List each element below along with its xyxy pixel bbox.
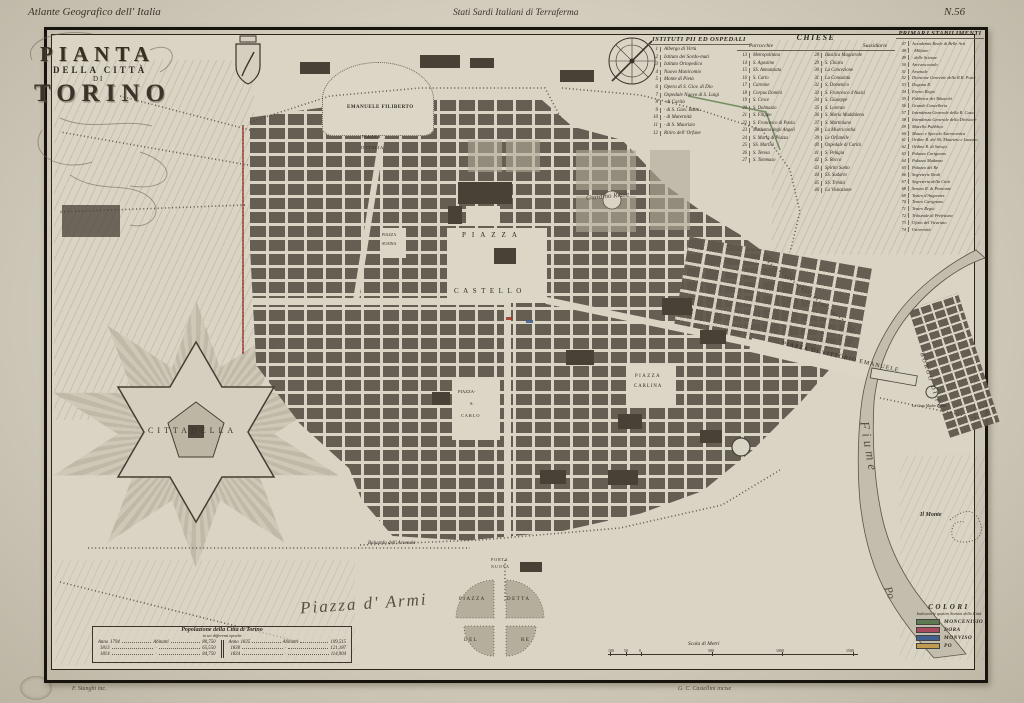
legend-stabilimenti-title: PRIMARJ STABILIMENTI [896,30,984,39]
label-piazza-susina-1: PIAZZA [382,232,396,237]
legend-item: 37 S. Martiniano [809,121,895,129]
label-carlina-2: CARLINA [634,384,662,389]
map-sheet: { "margins": { "series_title": "Atlante … [0,0,1024,703]
legend-item: 18 Corpus Domini [737,91,809,99]
legend-item: 11 · di S. Maurizio [648,123,750,131]
label-del-re-1: PIAZZA [459,597,486,602]
legend-item: 19 S. Croce [737,98,809,106]
label-piazza-italia-1: PIAZZA [362,134,381,139]
legend-item: 5 Monte di Pietà [648,77,750,85]
legend-item: 68 Senato R. di Piemonte [896,186,984,193]
legend-item: 21 S. Filippo [737,113,809,121]
label-del-re-4: RE [521,638,530,643]
legend-item: 45 SS. Trinità [809,181,895,189]
legend-item: 35 S. Lorenzo [809,106,895,114]
legend-item: 29 S. Chiara [809,61,895,69]
legend-chiese-subheads: Parrocchie Sussidiarie [737,43,895,51]
label-s-carlo-1: PIAZZA- [458,389,476,394]
scale-tick: 500 [708,648,714,653]
legend-item: 67 Segreteria della Città [896,179,984,186]
scale-label: Scala di Metri [688,641,719,647]
legend-sussidiarie-list: 28 Basilica Magistrale 29 S. Chiara 30 L… [809,53,895,196]
label-s-carlo-3: CARLO [461,413,480,418]
label-baluardo-arsenale: Baluardo dell' Arsenale [368,541,415,546]
colour-swatch [916,635,940,642]
population-row: 1814 · 84,750 [98,652,216,658]
legend-chiese-title: CHIESE [737,33,895,43]
label-gran-madre: La Gran Madre di Dio [912,404,946,408]
legend-item: 74 Università [896,227,984,234]
legend-item: 53 Dogana R. [896,82,984,89]
monte-spiral [950,511,981,542]
label-del-re-3: DEL [464,638,478,643]
legend-item: 25 SS. Martiri [737,143,809,151]
legend-item: 70 Teatro Carignano [896,199,984,206]
round-church [732,438,750,456]
legend-item: 24 S. Maria di Piazza [737,136,809,144]
colori-row: PO [912,642,986,650]
label-piazza-italia-2: D'ITALIA [361,145,384,150]
legend-item: 49 · delle Scienze [896,55,984,62]
legend-item: 34 S. Giuseppe [809,98,895,106]
legend-item: 16 S. Carlo [737,76,809,84]
legend-item: 63 Palazzo Carignano [896,151,984,158]
legend-item: 9 · di S. Giov. Batta. [648,108,750,116]
legend-item: 44 SS. Sudario [809,173,895,181]
legend-item: 61 Ordine R. dei SS. Maurizio e Lazzaro [896,137,984,144]
legend-stabilimenti: PRIMARJ STABILIMENTI 47 Accademia Reale … [896,30,984,234]
colori-entries: MONCENISIO DORA MONVISO PO [912,618,986,650]
legend-item: 62 Ordine R. di Savoja [896,144,984,151]
legend-item: 55 Fabbrica dei Tabacchi [896,96,984,103]
legend-item: 31 La Consolata [809,76,895,84]
colori-row: MONCENISIO [912,618,986,626]
legend-item: 42 S. Rocco [809,158,895,166]
cartouche-line4: TORINO [34,80,171,108]
legend-item: 23 Madonna degli Angeli [737,128,809,136]
colori-title: COLORI [912,603,986,611]
coat-of-arms-icon [236,36,260,84]
label-piazza-castello-1: PIAZZA [462,231,523,239]
legend-chiese: CHIESE Parrocchie Sussidiarie 13 Metropo… [737,33,895,196]
colour-swatch [916,619,940,626]
legend-item: 13 Metropolitana [737,53,809,61]
legend-chiese-sub-sussidiarie: Sussidiarie [863,43,887,49]
population-table: Popolazione della Città di Torino in sei… [92,626,352,663]
label-cittadella: CITTADELLA [148,426,237,435]
legend-istituti-list: 1 Albergo di Virtù 2 Istituto dei Sordo-… [648,47,750,138]
label-piazza-susina-2: SUSINA [382,241,396,246]
legend-item: 12 Ritiro dell' Orfane [648,131,750,139]
legend-item: 6 Opera di S. Giov. di Dio [648,85,750,93]
colour-swatch [916,643,940,650]
legend-item: 27 S. Tommaso [737,158,809,166]
legend-item: 15 SS. Annunziata [737,68,809,76]
label-carlina-1: PIAZZA [635,374,661,379]
legend-item: 54 Erario Regio [896,89,984,96]
legend-item: 47 Accademia Reale di Belle Arti [896,41,984,48]
section-mark-red [506,317,512,320]
label-emanuele-filiberto: EMANUELE FILIBERTO [347,105,414,110]
legend-item: 33 S. Francesco d'Assisi [809,91,895,99]
legend-item: 69 Teatro d'Angennes [896,193,984,200]
legend-item: 73 Ufizio del Vicariato [896,220,984,227]
label-s-carlo-2: S. [470,401,474,406]
legend-item: 36 S. Maria Maddalena [809,113,895,121]
cartouche-line2: DELLA CITTÀ [53,65,147,75]
legend-item: 71 Teatro Regio [896,206,984,213]
legend-item: 48 · Militare [896,48,984,55]
legend-istituti-title: ISTITUTI PII ED OSPEDALI [648,36,750,45]
population-row: 1834 · 114,904 [229,652,347,658]
legend-item: 65 Palazzo del Re [896,165,984,172]
legend-item: 46 La Visitazione [809,188,895,196]
legend-item: 22 S. Francesco di Paola [737,121,809,129]
scale-tick: 100 [608,648,614,653]
section-mark-blue [526,320,533,323]
legend-item: 57 Intendenza Generale della R. Casa [896,110,984,117]
legend-item: 41 S. Pelagia [809,151,895,159]
legend-item: 7 Ospedale Nuovo di S. Luigi [648,93,750,101]
legend-item: 60 Museo e Specola Astronomica [896,131,984,138]
legend-item: 20 S. Dalmazzo [737,106,809,114]
legend-item: 58 Intendenza Generale della Divisione [896,117,984,124]
cartouche-line1: PIANTA [40,42,155,67]
legend-item: 39 Le Orfanelle [809,136,895,144]
legend-chiese-sub-parrocchie: Parrocchie [749,43,773,49]
legend-item: 10 · di Maternità [648,115,750,123]
legend-item: 8 · di Carità [648,100,750,108]
label-piazza-castello-2: CASTELLO [454,287,526,295]
legend-item: 4 Nuovo Manicomio [648,70,750,78]
del-re-quadrants [456,580,544,656]
legend-item: 17 Carmine [737,83,809,91]
legend-item: 52 Divisione Generale delle R.R. Poste [896,75,984,82]
scale-bar: Scala di Metri 100 50 0 500 1000 1500 [608,641,863,661]
colori-row: MONVISO [912,634,986,642]
legend-item: 28 Basilica Magistrale [809,53,895,61]
legend-parrocchie-list: 13 Metropolitana 14 S. Agostino 15 SS. A… [737,53,809,196]
population-right: Anno 1825 Abitanti 109,515 1830 · 121,18… [221,640,352,658]
legend-item: 3 Istituto Ortopedico [648,62,750,70]
legend-stabilimenti-list: 47 Accademia Reale di Belle Arti 48 · Mi… [896,41,984,234]
legend-item: 50 Arcivescovado [896,62,984,69]
legend-item: 1 Albergo di Virtù [648,47,750,55]
label-porta-nuova-1: PORTA [491,557,509,562]
legend-istituti: ISTITUTI PII ED OSPEDALI 1 Albergo di Vi… [648,36,750,138]
legend-item: 59 Macello Pubblico [896,124,984,131]
legend-item: 43 Spirito Santo [809,166,895,174]
legend-item: 40 Ospedale di Carità [809,143,895,151]
colour-swatch [916,627,940,634]
legend-item: 2 Istituto dei Sordo-muti [648,55,750,63]
scale-line [608,654,858,655]
legend-item: 26 S. Teresa [737,151,809,159]
legend-item: 32 S. Domenico [809,83,895,91]
label-il-monte: Il Monte [920,512,942,518]
legend-item: 51 Arsenale [896,69,984,76]
label-del-re-2: DETTA [507,597,530,602]
label-porta-nuova-2: NUOVA [491,564,510,569]
legend-item: 30 La Concezione [809,68,895,76]
colori-row: DORA [912,626,986,634]
legend-item: 56 Grande Cancelleria [896,103,984,110]
legend-item: 66 Segreterie Reali [896,172,984,179]
legend-item: 14 S. Agostino [737,61,809,69]
colori-subtitle: Indicanti le quattro Sezioni della Città [912,611,986,616]
dark-buildings [62,55,726,572]
population-left: Anno 1794 Abitanti 80,750 1813 · 65,550 … [93,640,221,658]
legend-item: 38 La Misericordia [809,128,895,136]
population-subtitle: in sei differenti epoche [93,634,351,639]
legend-item: 72 Tribunale di Prefettura [896,213,984,220]
legend-item: 64 Palazzo Madama [896,158,984,165]
colori-legend: COLORI Indicanti le quattro Sezioni dell… [912,603,986,650]
